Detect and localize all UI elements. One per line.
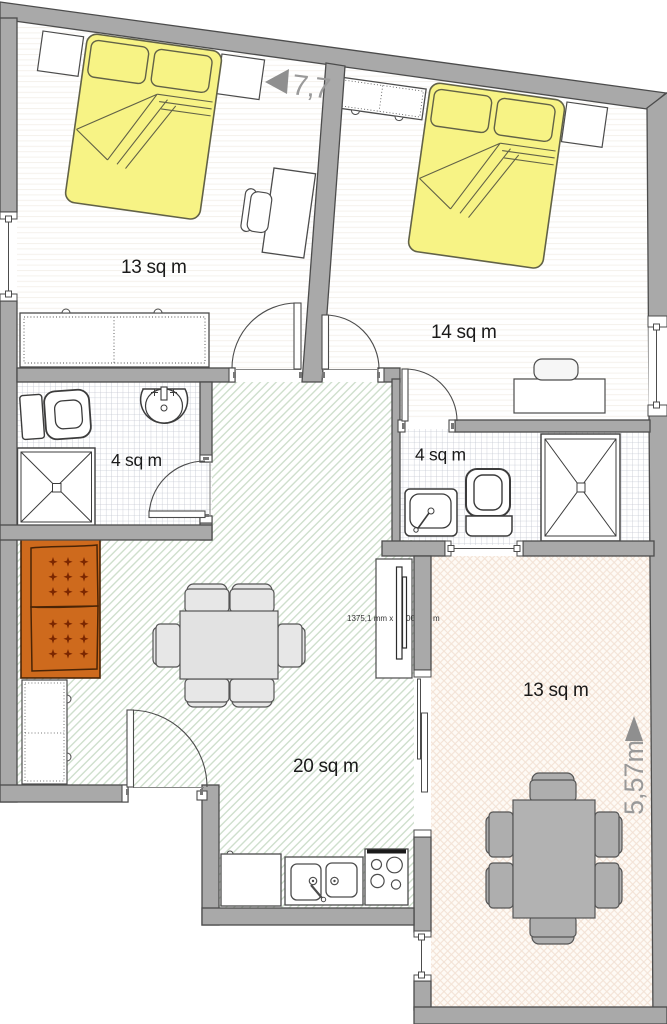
svg-text:1375,1 mm x: 1375,1 mm x (347, 614, 393, 623)
svg-text:5,57m: 5,57m (619, 740, 649, 815)
svg-text:m: m (433, 614, 440, 623)
svg-text:20 sq m: 20 sq m (293, 756, 359, 777)
svg-text:7,7: 7,7 (290, 69, 332, 105)
svg-text:14 sq m: 14 sq m (431, 322, 497, 343)
svg-text:4 sq m: 4 sq m (111, 450, 162, 470)
svg-text:4 sq m: 4 sq m (415, 445, 466, 465)
svg-text:13 sq m: 13 sq m (523, 680, 589, 701)
svg-text:13 sq m: 13 sq m (121, 257, 187, 278)
